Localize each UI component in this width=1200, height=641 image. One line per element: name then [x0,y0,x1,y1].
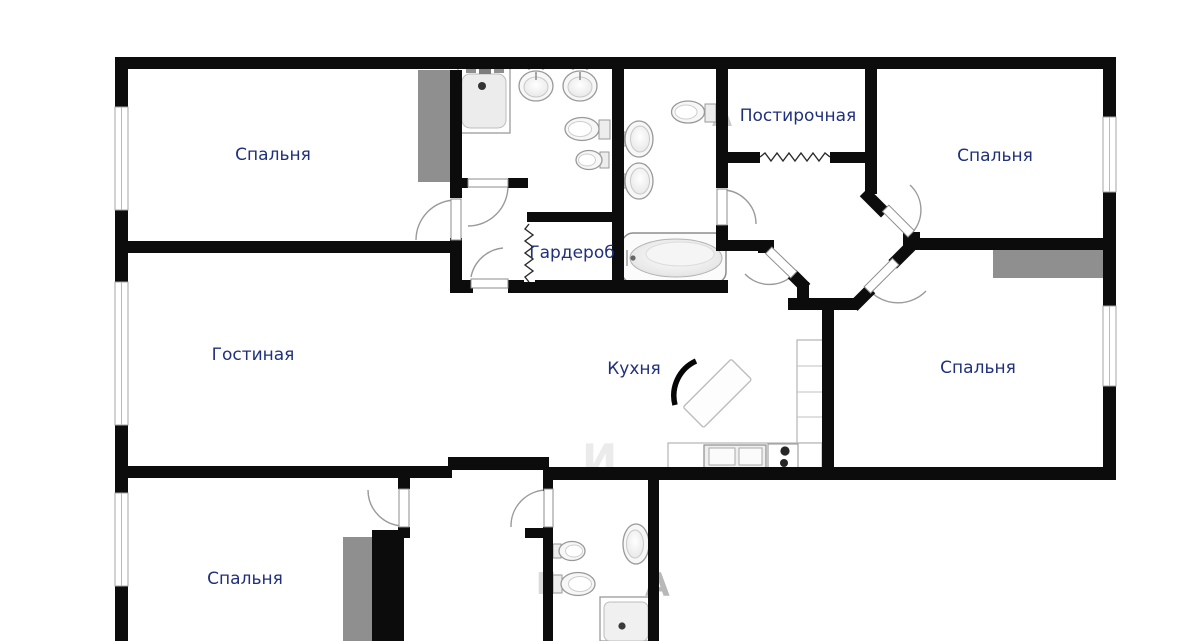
wall-segment [716,57,728,188]
door-swing-icon [468,186,508,226]
wall-segment [508,178,528,188]
kitchen-sink-basin [709,448,735,465]
wall-segment [543,527,553,641]
toilet-tank [705,104,716,122]
toilet-bowl [569,577,592,592]
room-label-laundry: Постирочная [740,106,856,126]
window-icon [1103,117,1116,192]
sink-bowl [631,126,650,152]
wall-segment [527,212,617,222]
door-leaf [882,205,914,237]
door-swing-icon [471,248,503,277]
bidet-bowl [566,545,583,557]
room-label-living-room: Гостиная [212,345,295,365]
door-leaf [766,247,797,278]
wall-segment [543,467,1116,480]
door-leaf [399,489,409,527]
wall-segment [797,282,809,304]
shower-tray-inner [462,74,506,128]
door-swing-icon [416,200,456,240]
wall-segment [1103,386,1116,478]
window-icon [115,282,128,425]
bathroom-top-fixtures [458,60,610,170]
room-label-bedroom-top-right: Спальня [957,146,1033,166]
bathroom-middle-fixtures [622,101,726,283]
wall-segment [450,280,473,293]
wall-segment [115,57,128,107]
wall-segment [648,478,659,641]
wall-segment [115,425,128,493]
toilet-tank [599,120,610,139]
sink-bowl [627,530,644,558]
room-label-bedroom-bottom-left: Спальня [207,569,283,589]
wardrobe-icon [993,250,1113,278]
wall-segment [716,152,760,163]
stove-burner [780,446,789,455]
wall-segment [448,457,549,470]
door-leaf [471,279,508,288]
toilet-bowl [569,122,592,137]
kitchen-fittings [668,340,823,470]
wall-segment [115,466,452,478]
window-icon [115,493,128,586]
bidet-bowl [579,154,596,166]
window-icon [1103,306,1116,386]
door-leaf [451,199,461,240]
wardrobe-icon [343,537,372,641]
wall-segment [372,530,404,641]
wall-segment [115,241,462,253]
kitchen-sink-basin [739,448,762,465]
window-icon [115,107,128,210]
wall-segment [1103,57,1116,117]
wall-segment [115,57,1116,69]
shower-drain [618,622,625,629]
room-label-wardrobe: Гардероб [529,243,614,263]
door-leaf [544,489,553,527]
door-swing-icon [910,185,921,234]
wardrobe-icon [418,70,450,182]
door-leaf [864,258,899,293]
kitchen-island-icon [683,359,752,428]
wall-segment [822,298,834,468]
wall-segment [115,586,128,641]
bathroom-bottom-fixtures [553,524,652,641]
sink-bowl [631,168,650,194]
room-label-bedroom-top-left: Спальня [235,145,311,165]
stove-burner [780,459,788,467]
door-swing-icon [745,274,794,284]
wall-segment [450,178,468,188]
room-label-bedroom-middle-right: Спальня [940,358,1016,378]
door-swing-icon [511,490,547,527]
room-label-kitchen: Кухня [607,359,661,379]
shower-tray-inner [604,602,648,641]
shower-drain [478,82,486,90]
floor-plan: А Е А И [0,0,1200,641]
wall-segment [398,477,410,489]
wall-segment [909,238,1116,250]
wall-segment [525,528,547,538]
accordion-door-icon [760,152,830,163]
bathtub-inner [646,242,714,266]
door-leaf [717,189,727,225]
wall-segment [865,57,877,194]
faucet-icon [630,255,635,260]
door-swing-icon [870,291,926,303]
door-leaf [468,179,508,187]
toilet-bowl [675,105,697,119]
